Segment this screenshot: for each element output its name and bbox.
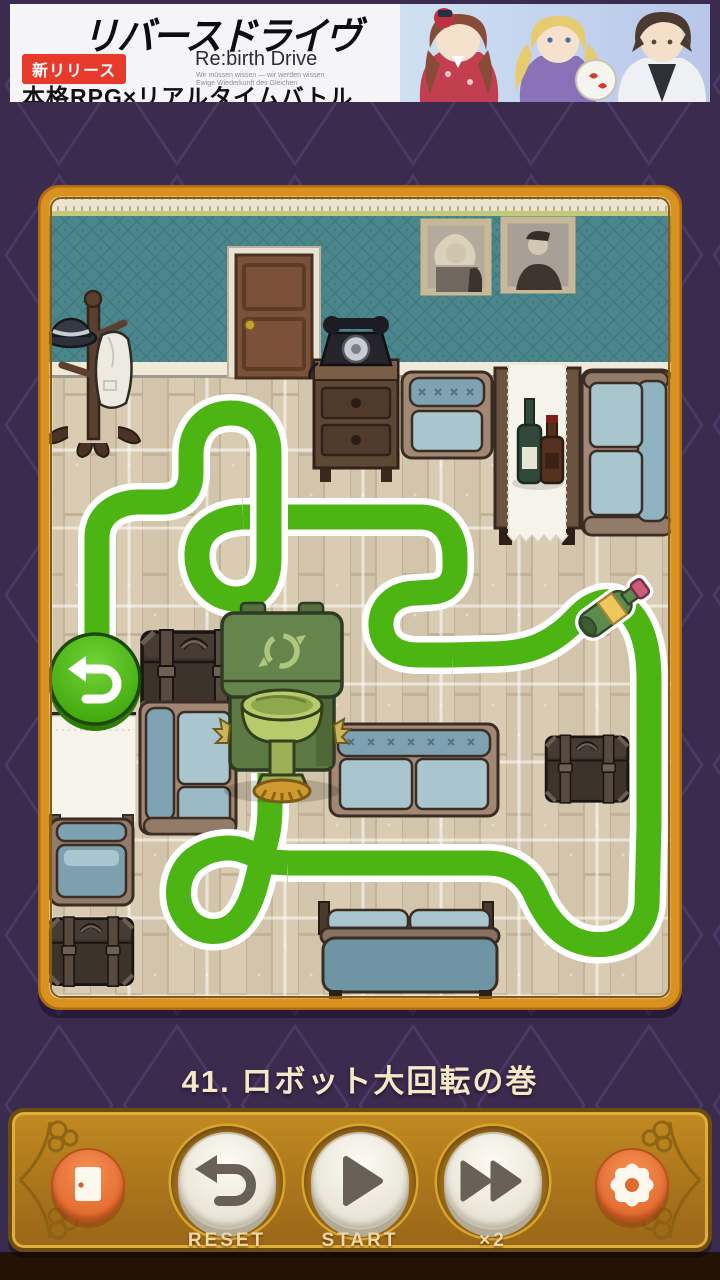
trunk-bottom-left [49, 917, 133, 986]
play-icon [330, 1151, 390, 1211]
armchair-top [402, 372, 492, 458]
door [228, 247, 320, 378]
gear-icon [606, 1159, 658, 1211]
chair-bottom-left [50, 815, 133, 905]
sofa-right [582, 370, 672, 535]
start-label: START [290, 1230, 430, 1252]
sofa-bottom [319, 902, 499, 1000]
reset-label: RESET [157, 1230, 297, 1252]
ad-characters-illustration [400, 4, 710, 102]
bottom-dark-strip [0, 1252, 720, 1280]
ad-text-block: リバースドライヴ Re:birth Drive Wir müssen wisse… [10, 4, 402, 102]
big-sofa [330, 724, 498, 816]
reset-button[interactable] [178, 1132, 276, 1230]
door-icon [68, 1163, 108, 1207]
undo-icon [191, 1151, 263, 1211]
portrait-woman [424, 222, 488, 292]
game-board[interactable] [38, 185, 682, 1010]
speed-label: ×2 [423, 1230, 563, 1252]
fast-forward-icon [455, 1151, 531, 1211]
telephone-cabinet [314, 360, 398, 482]
portrait-man [504, 220, 572, 290]
settings-button[interactable] [595, 1148, 669, 1222]
ad-banner[interactable]: リバースドライヴ Re:birth Drive Wir müssen wisse… [10, 4, 710, 102]
start-button[interactable] [311, 1132, 409, 1230]
trunk-right [546, 735, 628, 803]
goal-undo-button[interactable] [49, 634, 141, 731]
level-title: 41. ロボット大回転の巻 [0, 1056, 720, 1101]
ad-title-en: Re:birth Drive [195, 48, 317, 71]
hanging-coat [96, 332, 132, 408]
exit-button[interactable] [51, 1148, 125, 1222]
runner-table [495, 365, 580, 545]
ad-tagline: 本格RPG×リアルタイムバトル [22, 78, 353, 102]
speed-button[interactable] [444, 1132, 542, 1230]
